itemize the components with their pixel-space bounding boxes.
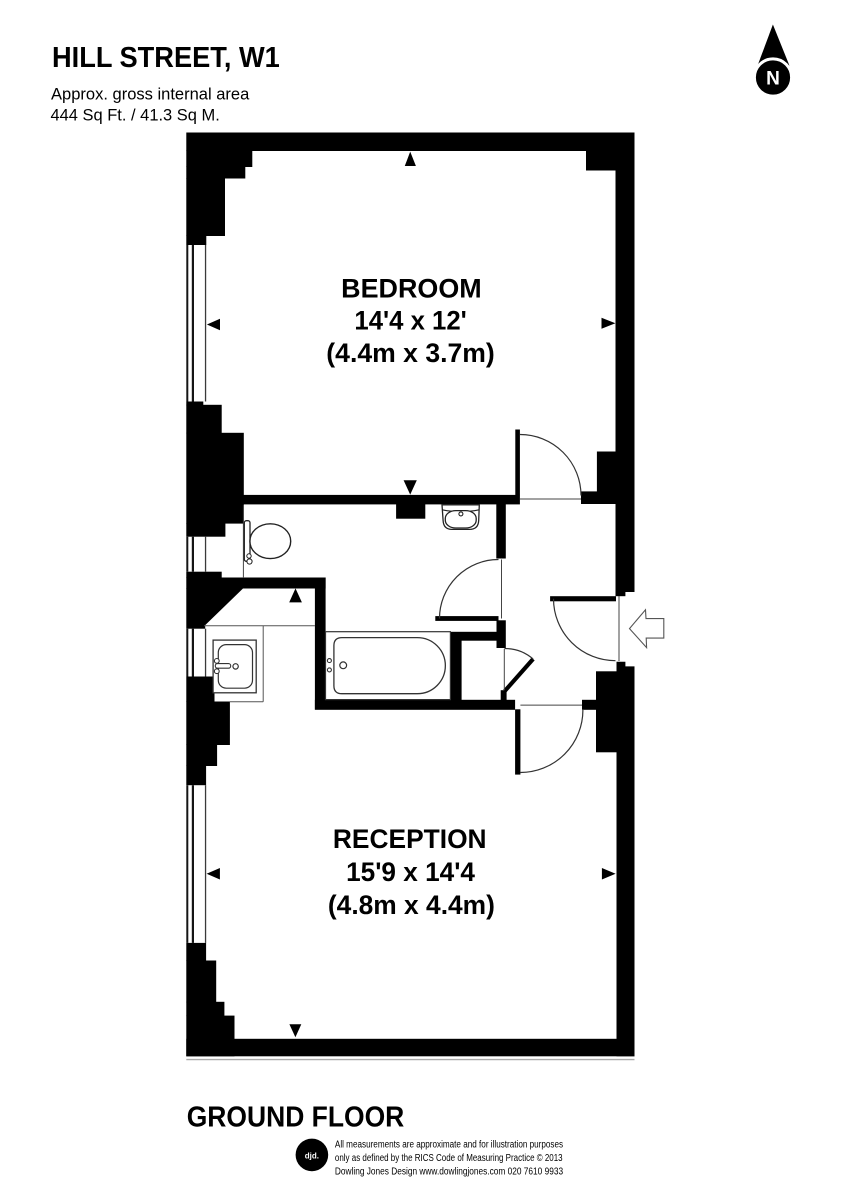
- svg-text:Dowling Jones Design www.dowli: Dowling Jones Design www.dowlingjones.co…: [335, 1166, 564, 1177]
- svg-text:BEDROOM: BEDROOM: [341, 274, 482, 304]
- svg-text:N: N: [766, 69, 780, 90]
- svg-text:14'4 x 12': 14'4 x 12': [354, 306, 466, 336]
- svg-text:444 Sq Ft. / 41.3 Sq M.: 444 Sq Ft. / 41.3 Sq M.: [51, 105, 220, 124]
- svg-text:GROUND FLOOR: GROUND FLOOR: [187, 1101, 405, 1133]
- svg-text:Approx. gross internal area: Approx. gross internal area: [51, 85, 250, 104]
- svg-text:djd.: djd.: [305, 1151, 319, 1160]
- svg-text:HILL STREET, W1: HILL STREET, W1: [52, 42, 280, 74]
- svg-text:(4.4m x 3.7m): (4.4m x 3.7m): [326, 338, 495, 368]
- svg-text:(4.8m x 4.4m): (4.8m x 4.4m): [328, 890, 495, 920]
- svg-text:15'9 x 14'4: 15'9 x 14'4: [346, 857, 475, 887]
- svg-text:only as defined by the RICS Co: only as defined by the RICS Code of Meas…: [335, 1153, 563, 1164]
- svg-text:RECEPTION: RECEPTION: [333, 824, 487, 854]
- svg-text:All measurements are approxima: All measurements are approximate and for…: [335, 1140, 563, 1151]
